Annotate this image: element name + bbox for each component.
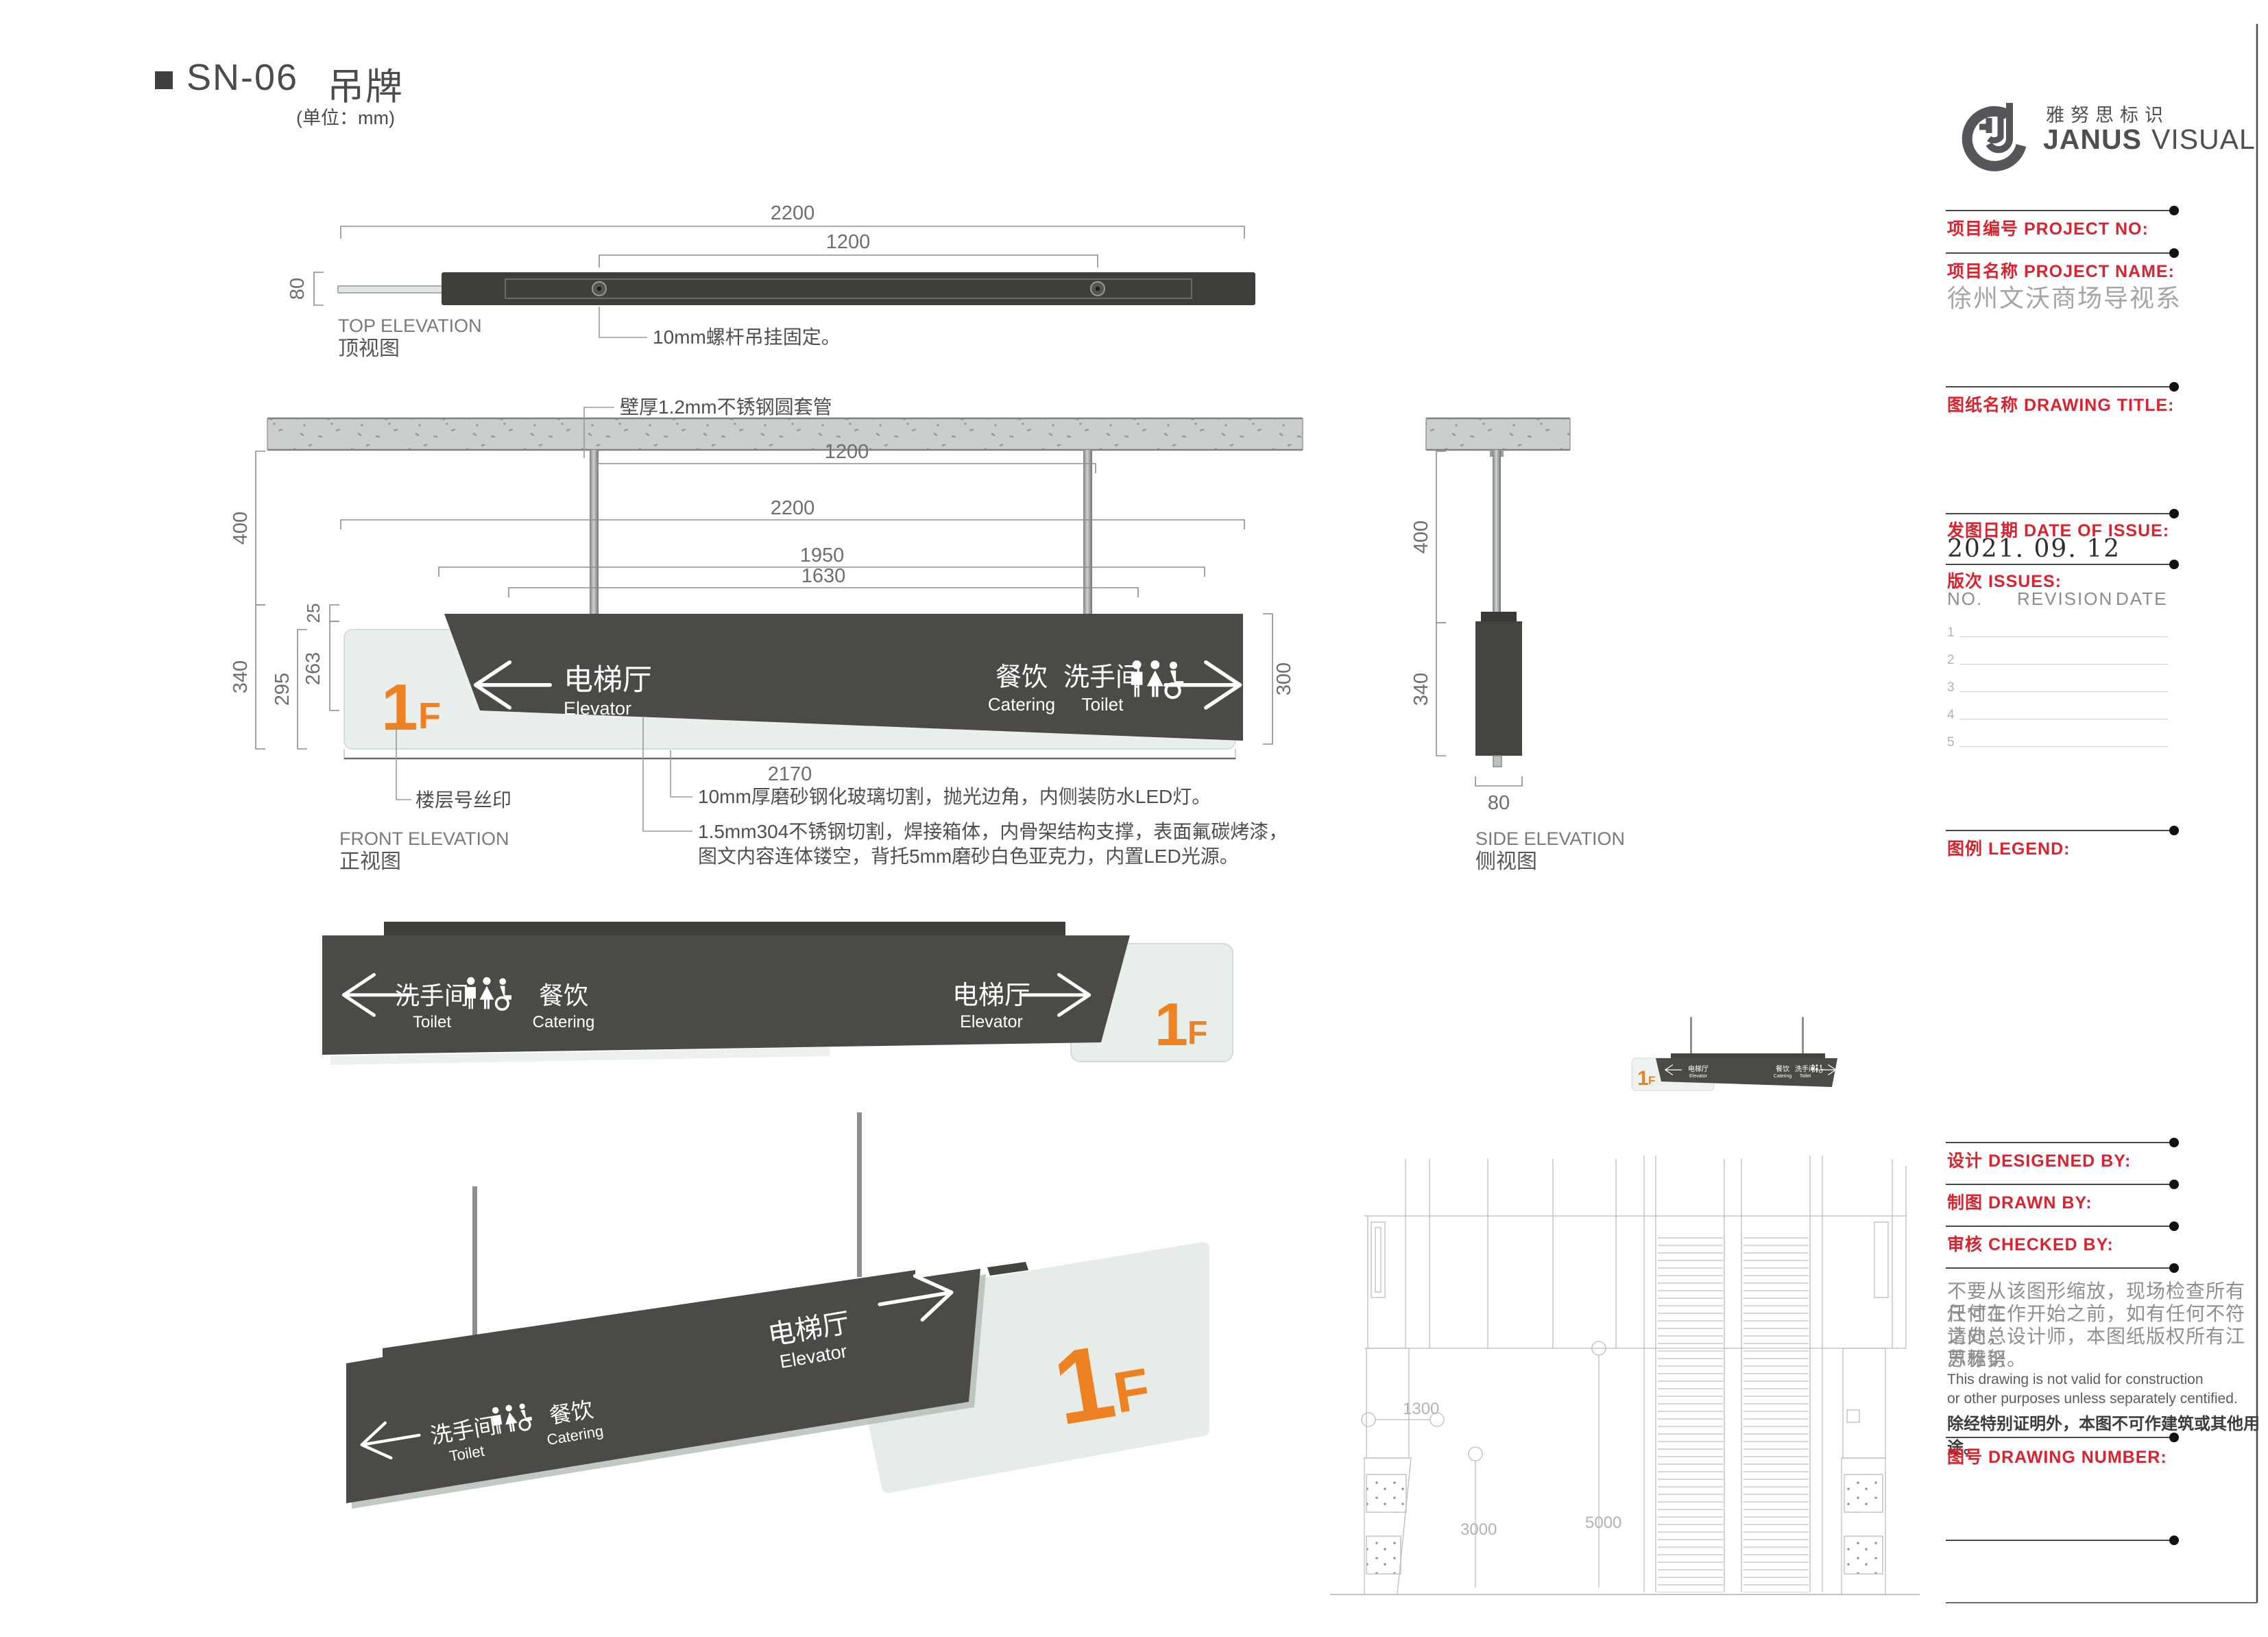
- sign-body-top-view: [442, 272, 1255, 305]
- field-line-dot: [2169, 206, 2179, 215]
- catering-zh: 餐饮: [996, 663, 1048, 692]
- field-line: [1946, 1540, 2169, 1541]
- cad-pedestal-texture: [1366, 1536, 1401, 1574]
- floor-number: 1: [1637, 1067, 1649, 1090]
- dim-label: 1200: [825, 441, 869, 463]
- issue-row-number: 1: [1947, 625, 1955, 641]
- field-line: [1946, 1184, 2169, 1185]
- elevator-en: Elevator: [564, 698, 631, 719]
- catering-en: Catering: [533, 1013, 595, 1031]
- designed-by-label: 设计 DESIGENED BY:: [1947, 1147, 2131, 1172]
- field-line: [1946, 1437, 2169, 1438]
- rendering-perspective: 洗手间 Toilet 餐饮 Catering 电梯厅 Elevator 1 F: [346, 1112, 1203, 1509]
- note-rod-fixing: 10mm螺杆吊挂固定。: [653, 326, 841, 348]
- issue-row-line: [1959, 636, 2168, 637]
- dim-bracket: [330, 621, 339, 710]
- toilet-en: Toilet: [1082, 694, 1124, 715]
- top-elevation-view: 2200 1200 80 TOP ELEVATION 顶视图 10mm螺杆吊挂固…: [287, 202, 1255, 360]
- note-steel-1: 1.5mm304不锈钢切割，焊接箱体，内骨架结构支撑，表面氟碳烤漆，: [698, 821, 1288, 842]
- cad-box: [1847, 1410, 1859, 1422]
- floor-number: 1: [1155, 990, 1188, 1058]
- dim-bracket: [341, 226, 1244, 239]
- rendering-back-face: 洗手间 Toilet 餐饮 Catering 电梯厅 Elevator 1 F: [322, 922, 1233, 1065]
- cad-pedestal-texture: [1844, 1474, 1883, 1512]
- dim-label: 340: [230, 660, 252, 693]
- toilet-en: Toilet: [1800, 1074, 1811, 1079]
- elevator-zh: 电梯厅: [564, 664, 652, 697]
- drawing-number-label: 图号 DRAWING NUMBER:: [1947, 1444, 2167, 1468]
- dim-bracket: [1436, 451, 1446, 623]
- drawn-by-label: 制图 DRAWN BY:: [1947, 1189, 2092, 1214]
- issue-row-number: 3: [1947, 680, 1955, 695]
- janus-logo-icon: [1967, 103, 2021, 166]
- sign-bottom-nub: [1493, 756, 1501, 767]
- date-of-issue-value: 2021. 09. 12: [1947, 535, 2121, 563]
- hanging-rod: [857, 1112, 862, 1277]
- issue-row-number: 2: [1947, 653, 1955, 668]
- dim-bracket: [330, 605, 339, 621]
- view-label-en: SIDE ELEVATION: [1475, 828, 1625, 849]
- screw: [1091, 282, 1105, 296]
- view-label-zh: 正视图: [339, 850, 401, 873]
- dim-label: 263: [302, 652, 324, 685]
- disclaimer-en-line1: This drawing is not valid for constructi…: [1947, 1372, 2204, 1388]
- brand-en-light: VISUAL: [2151, 123, 2256, 156]
- rendering-thumbnail: 1 F 电梯厅 Elevator 餐饮 Catering 洗手间 Toilet: [1632, 1017, 1837, 1090]
- note-silkscreen: 楼层号丝印: [415, 789, 511, 811]
- drawing-sheet: 2200 1200 80 TOP ELEVATION 顶视图 10mm螺杆吊挂固…: [0, 0, 2268, 1637]
- field-line-dot: [2169, 1536, 2179, 1545]
- dim-label: 80: [287, 278, 309, 300]
- sign-body-side: [1475, 621, 1522, 756]
- cad-escalator-steps: [1658, 1231, 1723, 1592]
- field-line: [1946, 252, 2169, 254]
- ceiling-slab: [267, 418, 1303, 450]
- field-line-dot: [2169, 1138, 2179, 1147]
- leader-line: [671, 750, 692, 797]
- dim-label: 340: [1410, 673, 1432, 706]
- floor-suffix: F: [1187, 1015, 1207, 1051]
- toilet-zh: 洗手间: [395, 981, 469, 1009]
- field-line: [1946, 830, 2169, 831]
- dim-bracket: [344, 749, 1235, 758]
- project-name-value: 徐州文沃商场导视系: [1947, 278, 2182, 314]
- issue-row-number: 4: [1947, 708, 1955, 723]
- front-elevation-view: 壁厚1.2mm不锈钢圆套管 1200 2200 1950 1630 1 F 电梯…: [230, 396, 1303, 873]
- field-line: [1946, 513, 2169, 514]
- catering-en: Catering: [988, 694, 1055, 715]
- dim-bracket: [599, 255, 1098, 267]
- floor-number: 1: [381, 671, 418, 744]
- note-steel-2: 图文内容连体镂空，背托5mm磨砂白色亚克力，内置LED光源。: [698, 846, 1239, 867]
- floor-suffix: F: [418, 695, 441, 737]
- cad-pedestal-texture: [1366, 1474, 1406, 1512]
- toilet-zh: 洗手间: [1063, 663, 1142, 692]
- leader-line: [599, 307, 647, 337]
- elevator-en: Elevator: [960, 1012, 1023, 1031]
- elevator-zh: 电梯厅: [952, 981, 1030, 1010]
- field-line-dot: [2169, 1180, 2179, 1189]
- cad-grid-bubble: [1469, 1447, 1482, 1461]
- dim-label: 2170: [768, 763, 812, 785]
- catering-zh: 餐饮: [1776, 1064, 1789, 1073]
- issue-row-line: [1959, 746, 2168, 747]
- dim-bracket: [256, 451, 265, 605]
- drawing-title-label: 图纸名称 DRAWING TITLE:: [1947, 392, 2174, 416]
- catering-en: Catering: [1774, 1074, 1792, 1079]
- cad-dim-label: 1300: [1403, 1400, 1439, 1418]
- cad-window: [1371, 1222, 1385, 1298]
- dim-bracket: [1263, 614, 1272, 744]
- cad-location-drawing: 1300 3000 5000: [1330, 1156, 1920, 1594]
- catering-zh: 餐饮: [539, 981, 588, 1009]
- view-label-zh: 侧视图: [1475, 850, 1537, 873]
- field-line-dot: [2169, 248, 2179, 258]
- disclaimer-zh-line4: 思标识。: [1947, 1348, 2260, 1370]
- ceiling-slab: [1426, 418, 1570, 450]
- hanging-rod: [1083, 450, 1092, 631]
- field-line: [1946, 564, 2169, 565]
- field-line: [1946, 1267, 2169, 1269]
- dim-bracket: [341, 520, 1244, 529]
- issue-row-number: 5: [1947, 735, 1955, 750]
- sign-code: SN-06: [186, 56, 298, 110]
- dim-label: 1630: [801, 565, 846, 587]
- project-no-label: 项目编号 PROJECT NO:: [1947, 215, 2149, 240]
- field-line-dot: [2169, 1433, 2179, 1442]
- cad-grid-bubble: [1362, 1413, 1375, 1426]
- field-line-dot: [2169, 509, 2179, 518]
- field-line: [1946, 210, 2169, 211]
- field-line: [1946, 386, 2169, 387]
- field-line-dot: [2169, 1263, 2179, 1273]
- hanging-rod: [590, 450, 599, 631]
- sign-cap-side: [1481, 612, 1517, 623]
- issues-col-no: NO.: [1947, 588, 1983, 610]
- field-line-dot: [2169, 560, 2179, 569]
- title-bullet-square: [155, 71, 173, 89]
- dim-bracket: [314, 272, 324, 305]
- cad-dim-label: 5000: [1585, 1514, 1621, 1532]
- brand-name-en: JANUS VISUAL: [2043, 123, 2256, 156]
- issue-row-line: [1959, 691, 2168, 692]
- elevator-en: Elevator: [1689, 1074, 1707, 1079]
- dim-label: 295: [272, 673, 293, 706]
- dim-bracket: [509, 588, 1138, 597]
- cad-floor-lines: [1364, 1216, 1906, 1348]
- note-glass: 10mm厚磨砂钢化玻璃切割，抛光边角，内侧装防水LED灯。: [698, 786, 1211, 807]
- cad-window-inner: [1375, 1228, 1381, 1292]
- view-label-zh: 顶视图: [338, 337, 400, 360]
- toilet-en: Toilet: [413, 1013, 451, 1031]
- cad-pedestal-texture: [1844, 1536, 1883, 1574]
- dim-label: 2200: [771, 497, 815, 519]
- side-elevation-view: 400 340 80 SIDE ELEVATION 侧视图: [1410, 418, 1625, 873]
- cad-dim-label: 3000: [1460, 1520, 1497, 1539]
- issues-col-revision: REVISION: [2017, 588, 2113, 610]
- field-line-dot: [2169, 826, 2179, 835]
- dim-label: 25: [303, 604, 324, 623]
- issue-row-line: [1959, 719, 2168, 719]
- dim-bracket: [256, 605, 265, 749]
- cad-escalator-steps: [1744, 1231, 1809, 1592]
- brand-en-bold: JANUS: [2043, 123, 2142, 156]
- hanging-rod: [1690, 1017, 1692, 1055]
- issues-col-date: DATE: [2116, 588, 2167, 610]
- view-label-en: FRONT ELEVATION: [339, 828, 509, 849]
- note-sleeve: 壁厚1.2mm不锈钢圆套管: [620, 396, 832, 418]
- dim-bracket: [598, 464, 1096, 473]
- dim-label: 2200: [771, 202, 815, 224]
- hanging-rod: [1493, 450, 1501, 621]
- floor-suffix: F: [1648, 1074, 1655, 1087]
- hanging-rod: [1802, 1017, 1804, 1055]
- disclaimer-en-line2: or other purposes unless separately cent…: [1947, 1391, 2238, 1407]
- hanging-rod: [472, 1186, 477, 1351]
- dim-label: 1200: [826, 231, 871, 253]
- view-label-en: TOP ELEVATION: [338, 315, 482, 336]
- field-line-dot: [2169, 1221, 2179, 1231]
- dim-label: 1950: [800, 545, 845, 566]
- sign-back-strip: [1671, 1053, 1825, 1059]
- field-line-dot: [2169, 382, 2179, 392]
- cad-column: [1843, 1348, 1885, 1458]
- screw: [592, 282, 606, 296]
- glass-edge-top-view: [338, 286, 442, 293]
- issue-row-line: [1959, 664, 2168, 665]
- field-line: [1946, 1142, 2169, 1143]
- sign-back-strip: [384, 922, 1065, 936]
- unit-note: (单位：mm): [296, 103, 395, 130]
- drawing-area: 2200 1200 80 TOP ELEVATION 顶视图 10mm螺杆吊挂固…: [0, 0, 2268, 1637]
- dim-label: 80: [1488, 792, 1510, 814]
- dim-label: 400: [1410, 521, 1432, 553]
- dim-bracket: [1475, 776, 1522, 786]
- dim-label: 400: [230, 512, 252, 545]
- legend-label: 图例 LEGEND:: [1947, 835, 2070, 860]
- checked-by-label: 审核 CHECKED BY:: [1947, 1231, 2114, 1256]
- cad-window: [1874, 1222, 1888, 1298]
- dim-bracket: [1436, 623, 1446, 756]
- elevator-zh: 电梯厅: [1688, 1064, 1709, 1073]
- dim-bracket: [298, 630, 307, 749]
- cad-mullions: [1368, 1159, 1906, 1348]
- dim-label: 300: [1273, 662, 1295, 695]
- field-line: [1946, 1226, 2169, 1227]
